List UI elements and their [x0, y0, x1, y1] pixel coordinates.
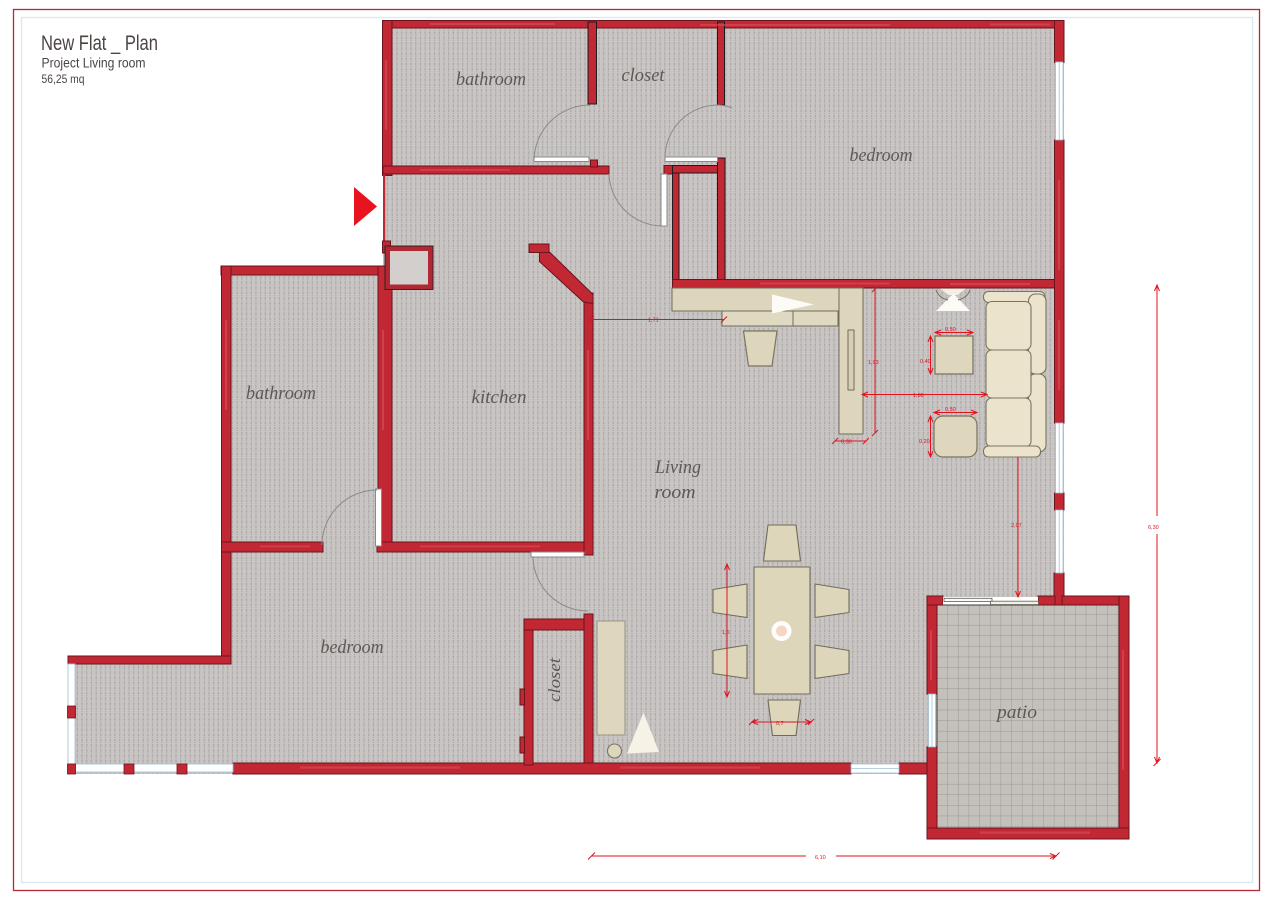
svg-text:bedroom: bedroom	[321, 637, 384, 658]
svg-text:Project Living room: Project Living room	[42, 55, 146, 71]
svg-text:0,30: 0,30	[841, 440, 852, 446]
svg-text:0,7: 0,7	[776, 721, 784, 727]
svg-text:kitchen: kitchen	[472, 387, 527, 408]
svg-text:1,6: 1,6	[722, 630, 730, 636]
svg-text:0,40: 0,40	[920, 359, 931, 365]
svg-text:0,20: 0,20	[919, 439, 930, 445]
svg-text:6,10: 6,10	[815, 855, 826, 861]
svg-text:room: room	[655, 482, 696, 503]
svg-text:1,88: 1,88	[913, 393, 924, 399]
svg-text:New Flat _ Plan: New Flat _ Plan	[41, 31, 158, 55]
svg-text:2,07: 2,07	[1011, 523, 1022, 529]
svg-text:bedroom: bedroom	[850, 145, 913, 166]
svg-text:6,30: 6,30	[1148, 525, 1159, 531]
svg-text:1,71: 1,71	[648, 318, 659, 324]
svg-text:56,25 mq: 56,25 mq	[42, 72, 85, 86]
svg-text:0,50: 0,50	[945, 407, 956, 413]
svg-text:bathroom: bathroom	[246, 383, 316, 404]
svg-text:bathroom: bathroom	[456, 69, 526, 90]
svg-text:0,50: 0,50	[945, 327, 956, 333]
svg-text:closet: closet	[622, 65, 666, 86]
svg-text:1,93: 1,93	[868, 360, 879, 366]
svg-text:Living: Living	[654, 457, 701, 478]
svg-text:closet: closet	[545, 657, 564, 702]
svg-text:patio: patio	[995, 702, 1037, 723]
